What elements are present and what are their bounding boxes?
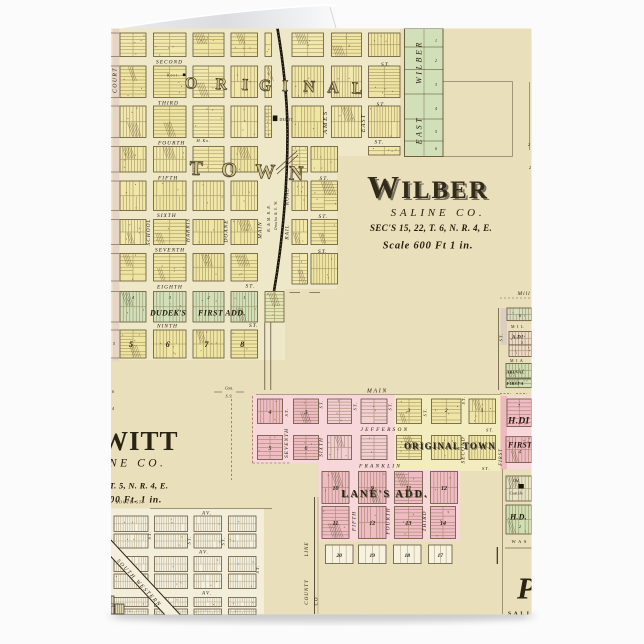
- svg-text:THIRD: THIRD: [422, 511, 428, 532]
- svg-text:LINE: LINE: [305, 542, 310, 558]
- svg-text:Cent.: Cent.: [225, 387, 233, 391]
- svg-text:ST.: ST.: [284, 408, 289, 417]
- svg-text:THIRD: THIRD: [158, 101, 179, 107]
- svg-text:N: N: [289, 162, 305, 185]
- svg-text:1: 1: [435, 38, 437, 43]
- svg-text:10: 10: [333, 486, 339, 492]
- svg-text:SALINE CO.: SALINE CO.: [391, 207, 486, 219]
- svg-text:ST.: ST.: [187, 536, 192, 545]
- svg-text:ST.: ST.: [381, 62, 391, 68]
- svg-text:FRANKLIN: FRANKLIN: [358, 464, 402, 470]
- svg-text:3: 3: [304, 410, 308, 416]
- svg-text:MAIN: MAIN: [258, 221, 264, 239]
- svg-text:1: 1: [243, 295, 245, 300]
- svg-text:ROAD: ROAD: [285, 187, 291, 206]
- svg-text:5: 5: [113, 341, 115, 346]
- svg-text:ST.: ST.: [482, 466, 491, 471]
- svg-text:DUDEK'S: DUDEK'S: [149, 309, 186, 318]
- svg-text:Scale 600 Ft 1 in.: Scale 600 Ft 1 in.: [383, 241, 474, 252]
- svg-text:ST.: ST.: [461, 396, 466, 405]
- svg-text:6: 6: [435, 146, 437, 151]
- svg-text:6: 6: [305, 446, 308, 452]
- svg-text:N: N: [303, 78, 316, 95]
- svg-text:2: 2: [435, 58, 437, 63]
- svg-text:WITT: WITT: [101, 426, 179, 456]
- svg-text:W: W: [255, 161, 276, 184]
- svg-text:RAIL: RAIL: [285, 224, 291, 240]
- svg-text:DEPOT: DEPOT: [280, 118, 294, 122]
- svg-text:ST.: ST.: [498, 333, 503, 341]
- svg-text:18: 18: [405, 553, 411, 559]
- svg-text:M I L: M I L: [511, 324, 524, 329]
- svg-text:SEC'S 15, 22, T. 6, N. R. 4, E: SEC'S 15, 22, T. 6, N. R. 4, E.: [370, 223, 492, 233]
- svg-text:WILBER: WILBER: [415, 40, 424, 84]
- svg-text:6: 6: [166, 340, 170, 349]
- svg-text:SEVENTH: SEVENTH: [284, 428, 290, 458]
- svg-text:B. & M. R. R.: B. & M. R. R.: [267, 204, 271, 231]
- svg-text:LANE'S ADD.: LANE'S ADD.: [341, 489, 428, 500]
- svg-text:FIRST: FIRST: [507, 441, 533, 450]
- svg-text:ST.: ST.: [375, 140, 385, 146]
- svg-text:G: G: [259, 77, 273, 94]
- svg-text:H.DI: H.DI: [507, 417, 530, 427]
- svg-text:DOANE: DOANE: [224, 220, 230, 244]
- svg-text:SOUTH ST.: SOUTH ST.: [116, 500, 144, 505]
- svg-text:2: 2: [528, 142, 530, 147]
- svg-text:17: 17: [438, 553, 444, 559]
- svg-text:Old.: Old.: [513, 479, 519, 483]
- svg-text:5: 5: [521, 340, 523, 345]
- svg-text:MAIN: MAIN: [366, 389, 388, 395]
- svg-text:ST.: ST.: [221, 537, 226, 546]
- svg-text:3: 3: [407, 408, 411, 414]
- svg-text:FIRST A: FIRST A: [507, 381, 524, 386]
- svg-text:Omaha & S. W.: Omaha & S. W.: [274, 200, 278, 230]
- svg-text:FIFTH: FIFTH: [352, 511, 358, 532]
- svg-text:FIRST: FIRST: [499, 448, 504, 467]
- svg-text:AV.: AV.: [198, 551, 209, 556]
- svg-text:SEVENTH: SEVENTH: [155, 248, 185, 254]
- svg-text:13: 13: [406, 521, 412, 527]
- svg-text:A: A: [327, 79, 340, 96]
- svg-text:COUNTY: COUNTY: [305, 579, 310, 605]
- svg-text:SCHOOL: SCHOOL: [146, 219, 152, 246]
- svg-text:ST.: ST.: [255, 565, 260, 574]
- svg-text:O: O: [221, 159, 237, 182]
- svg-text:5: 5: [269, 446, 272, 452]
- svg-text:ST.: ST.: [388, 402, 393, 411]
- svg-text:I: I: [282, 78, 289, 95]
- svg-text:ST.: ST.: [147, 531, 152, 540]
- svg-text:SECOND: SECOND: [156, 60, 183, 66]
- svg-text:ORIGINAL TOWN: ORIGINAL TOWN: [404, 441, 496, 451]
- svg-text:FIFTH: FIFTH: [157, 176, 178, 182]
- svg-text:O: O: [185, 75, 198, 92]
- svg-text:5: 5: [435, 129, 437, 134]
- svg-text:SIXTH: SIXTH: [157, 213, 177, 219]
- svg-text:AV.: AV.: [201, 592, 212, 597]
- svg-text:14: 14: [440, 521, 446, 527]
- svg-text:5: 5: [129, 340, 133, 349]
- svg-text:6: 6: [112, 389, 114, 394]
- svg-text:M.Ko.: M.Ko.: [196, 139, 212, 143]
- svg-text:3: 3: [435, 82, 437, 87]
- svg-text:M I A: M I A: [510, 358, 524, 363]
- svg-text:2: 2: [519, 524, 521, 529]
- svg-text:20: 20: [336, 553, 343, 559]
- svg-text:1: 1: [481, 408, 484, 414]
- svg-text:FOURTH: FOURTH: [157, 141, 185, 147]
- svg-text:12: 12: [369, 521, 375, 527]
- svg-text:EIGHTH: EIGHTH: [156, 285, 183, 291]
- svg-text:EAST: EAST: [361, 114, 367, 133]
- svg-text:COURT: COURT: [113, 67, 119, 93]
- svg-text:4: 4: [269, 409, 272, 416]
- svg-text:4: 4: [112, 406, 114, 411]
- svg-text:ST.: ST.: [320, 176, 330, 182]
- svg-text:Kost.: Kost.: [166, 74, 180, 78]
- svg-text:JEFFERSON: JEFFERSON: [361, 427, 410, 433]
- svg-text:FIRST ADD.: FIRST ADD.: [197, 309, 246, 318]
- svg-text:11: 11: [333, 521, 339, 527]
- svg-text:S. 9.: S. 9.: [226, 395, 233, 399]
- svg-text:ST.: ST.: [249, 323, 259, 329]
- svg-text:ST.: ST.: [377, 102, 387, 108]
- svg-text:R: R: [215, 76, 228, 93]
- svg-text:NINTH: NINTH: [156, 324, 178, 330]
- svg-text:ST.: ST.: [353, 402, 358, 411]
- svg-text:AV.: AV.: [201, 512, 212, 517]
- svg-text:ST.: ST.: [319, 214, 329, 220]
- svg-text:Coun.Ho: Coun.Ho: [510, 492, 523, 496]
- svg-text:AMES: AMES: [322, 110, 329, 135]
- svg-text:ST.: ST.: [319, 400, 324, 409]
- svg-text:FOURTH: FOURTH: [386, 507, 392, 535]
- svg-text:W A S: W A S: [512, 539, 528, 544]
- svg-text:H.D.: H.D.: [509, 513, 527, 522]
- svg-text:4: 4: [435, 106, 437, 111]
- svg-text:EAST: EAST: [415, 116, 424, 146]
- svg-text:19: 19: [370, 553, 376, 559]
- svg-text:ARUVAL: ARUVAL: [506, 370, 525, 375]
- svg-text:8: 8: [240, 340, 244, 349]
- svg-text:NE CO.: NE CO.: [108, 458, 166, 470]
- svg-text:2: 2: [529, 165, 531, 170]
- svg-text:Mill: Mill: [517, 291, 531, 297]
- svg-text:SIXTH: SIXTH: [319, 437, 325, 457]
- svg-text:2: 2: [445, 408, 448, 414]
- svg-text:ST.: ST.: [318, 249, 328, 255]
- svg-text:12: 12: [441, 486, 447, 492]
- svg-text:CO: CO: [315, 597, 320, 606]
- svg-text:L: L: [352, 80, 363, 97]
- svg-text:ST.: ST.: [423, 408, 428, 417]
- svg-text:I: I: [242, 76, 249, 93]
- svg-text:HARRIS: HARRIS: [186, 218, 192, 243]
- svg-text:ST.: ST.: [246, 284, 256, 290]
- svg-text:T: T: [189, 157, 204, 179]
- svg-text:ST.: ST.: [486, 428, 495, 433]
